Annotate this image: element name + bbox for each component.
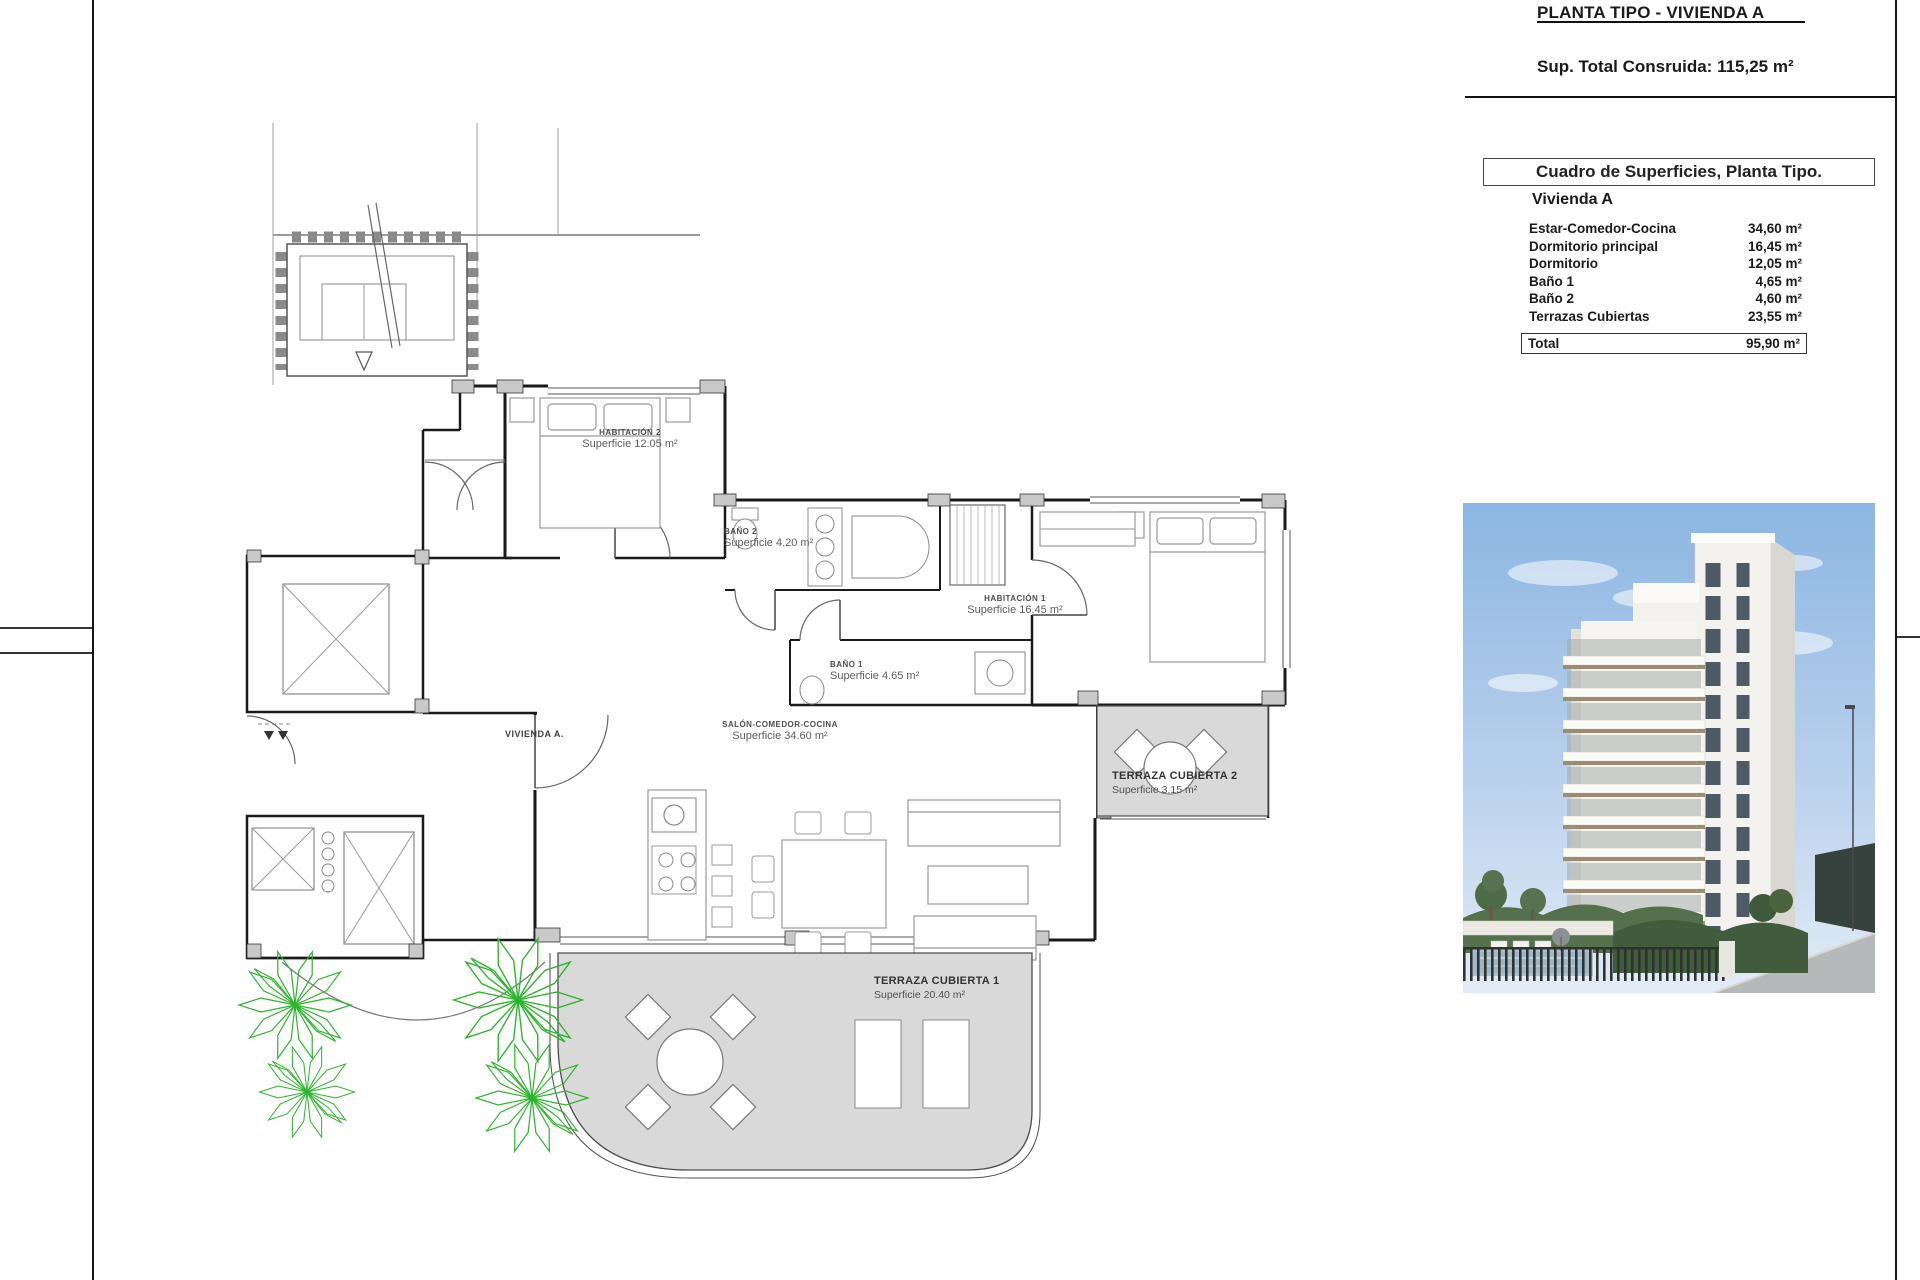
photo-neighbor-building [1815, 843, 1875, 933]
room-label-habitacion2: HABITACIÓN 2 Superficie 12.05 m² [560, 428, 700, 451]
room-area: Superficie 34.60 m² [700, 730, 860, 743]
margin-tick [1897, 636, 1920, 638]
surface-row-value: 16,45 m² [1748, 238, 1802, 256]
staircase [281, 203, 473, 376]
surface-table-row: Dormitorio 12,05 m² [1529, 255, 1802, 273]
bedroom1-furniture [1040, 512, 1265, 662]
room-name: SALÓN-COMEDOR-COCINA [700, 720, 860, 729]
room-area: Superficie 3.15 m² [1112, 784, 1272, 796]
room-name: BAÑO 1 [830, 660, 960, 669]
room-name: HABITACIÓN 2 [560, 428, 700, 437]
room-area: Superficie 4.20 m² [724, 537, 844, 550]
surface-table-row: Baño 2 4,60 m² [1529, 290, 1802, 308]
surface-row-value: 34,60 m² [1748, 220, 1802, 238]
surface-row-label: Terrazas Cubiertas [1529, 308, 1650, 326]
margin-tick [0, 627, 92, 629]
kitchen [648, 790, 732, 940]
plan-sheet: { "page": { "sheet_title": "PLANTA TIPO … [0, 0, 1920, 1280]
surface-row-label: Baño 2 [1529, 290, 1574, 308]
room-name: TERRAZA CUBIERTA 2 [1112, 770, 1272, 783]
room-name: TERRAZA CUBIERTA 1 [874, 975, 1034, 988]
photo-fence [1463, 941, 1735, 981]
surface-row-value: 23,55 m² [1748, 308, 1802, 326]
page-border-left [92, 0, 94, 1280]
room-label-terraza2: TERRAZA CUBIERTA 2 Superficie 3.15 m² [1112, 770, 1272, 796]
room-label-habitacion1: HABITACIÓN 1 Superficie 16.45 m² [950, 594, 1080, 617]
room-label-salon: SALÓN-COMEDOR-COCINA Superficie 34.60 m² [700, 720, 860, 743]
bedroom2-furniture [510, 398, 690, 528]
elevator-core-upper [247, 556, 423, 712]
margin-tick [0, 652, 92, 654]
room-name: HABITACIÓN 1 [950, 594, 1080, 603]
room-label-bano1: BAÑO 1 Superficie 4.65 m² [830, 660, 960, 683]
hall-closet [950, 505, 1005, 585]
room-label-bano2: BAÑO 2 Superficie 4.20 m² [724, 527, 844, 550]
room-area: Superficie 4.65 m² [830, 670, 960, 683]
surface-row-value: 4,65 m² [1755, 273, 1802, 291]
unit-tag-label: VIVIENDA A. [505, 729, 564, 739]
surface-table-total: Total 95,90 m² [1521, 333, 1807, 354]
surface-row-label: Dormitorio [1529, 255, 1598, 273]
room-area: Superficie 12.05 m² [560, 438, 700, 451]
total-value: 95,90 m² [1746, 336, 1800, 351]
garden-plants [239, 936, 588, 1153]
room-area: Superficie 20.40 m² [874, 989, 1034, 1001]
surface-row-label: Baño 1 [1529, 273, 1574, 291]
surface-table-unit-name: Vivienda A [1532, 191, 1613, 209]
surface-table-row: Dormitorio principal 16,45 m² [1529, 238, 1802, 256]
surface-row-label: Dormitorio principal [1529, 238, 1658, 256]
page-border-right [1895, 0, 1897, 1280]
surface-row-value: 12,05 m² [1748, 255, 1802, 273]
terrace-2 [1097, 706, 1268, 816]
surface-table-header: Cuadro de Superficies, Planta Tipo. [1483, 158, 1875, 186]
total-label: Total [1528, 336, 1559, 351]
surface-table-rows: Estar-Comedor-Cocina 34,60 m² Dormitorio… [1529, 220, 1802, 325]
title-underline [1537, 21, 1805, 23]
surface-table-row: Baño 1 4,65 m² [1529, 273, 1802, 291]
room-name: BAÑO 2 [724, 527, 844, 536]
surface-table-row: Terrazas Cubiertas 23,55 m² [1529, 308, 1802, 326]
title-block-divider [1465, 96, 1896, 98]
total-built-area: Sup. Total Consruida: 115,25 m² [1537, 57, 1794, 77]
surface-row-value: 4,60 m² [1755, 290, 1802, 308]
surface-table-row: Estar-Comedor-Cocina 34,60 m² [1529, 220, 1802, 238]
elevator-core-lower [247, 816, 423, 958]
sheet-title: PLANTA TIPO - VIVIENDA A [1537, 3, 1764, 23]
building-render-photo [1463, 503, 1875, 993]
room-label-terraza1: TERRAZA CUBIERTA 1 Superficie 20.40 m² [874, 975, 1034, 1001]
surface-row-label: Estar-Comedor-Cocina [1529, 220, 1676, 238]
room-area: Superficie 16.45 m² [950, 604, 1080, 617]
dining-set [752, 812, 886, 954]
